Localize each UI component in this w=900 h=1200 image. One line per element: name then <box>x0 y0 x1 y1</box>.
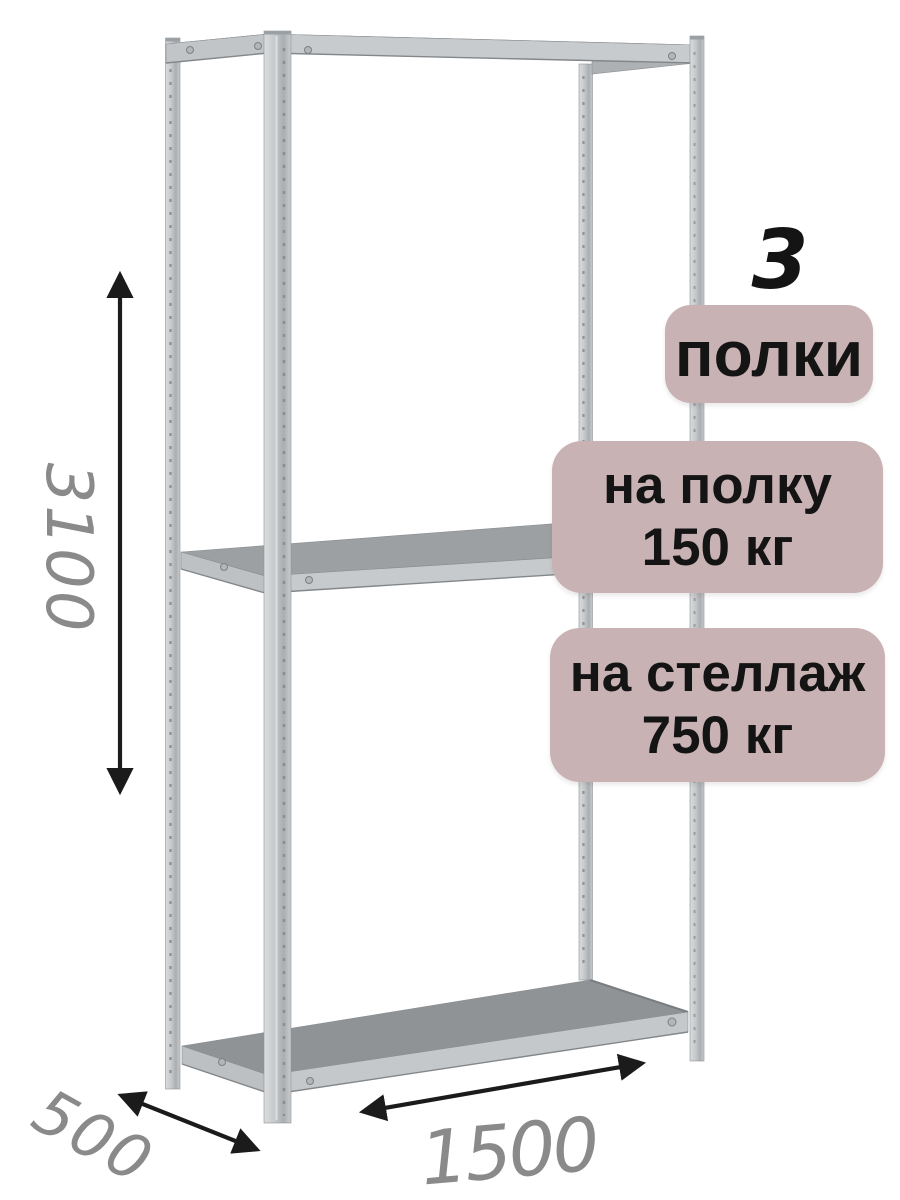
per-rack-load-badge: на стеллаж 750 кг <box>550 628 885 782</box>
rack-illustration <box>0 0 900 1200</box>
front-left-post <box>264 31 291 1123</box>
per-rack-load-line2: 750 кг <box>642 705 794 767</box>
back-left-post <box>166 38 181 1089</box>
height-dimension-label: 3100 <box>23 438 103 658</box>
top-shelf <box>166 34 695 74</box>
per-shelf-load-line1: на полку <box>603 455 832 517</box>
per-shelf-load-badge: на полку 150 кг <box>552 441 883 593</box>
per-rack-load-line1: на стеллаж <box>570 643 866 705</box>
product-image: 3 полки на полку 150 кг на стеллаж 750 к… <box>0 0 900 1200</box>
shelf-count-badge: полки <box>665 305 873 403</box>
per-shelf-load-line2: 150 кг <box>642 517 794 579</box>
shelf-count-number: 3 <box>705 220 855 302</box>
bottom-shelf <box>182 980 688 1095</box>
shelf-count-label: полки <box>675 322 863 386</box>
